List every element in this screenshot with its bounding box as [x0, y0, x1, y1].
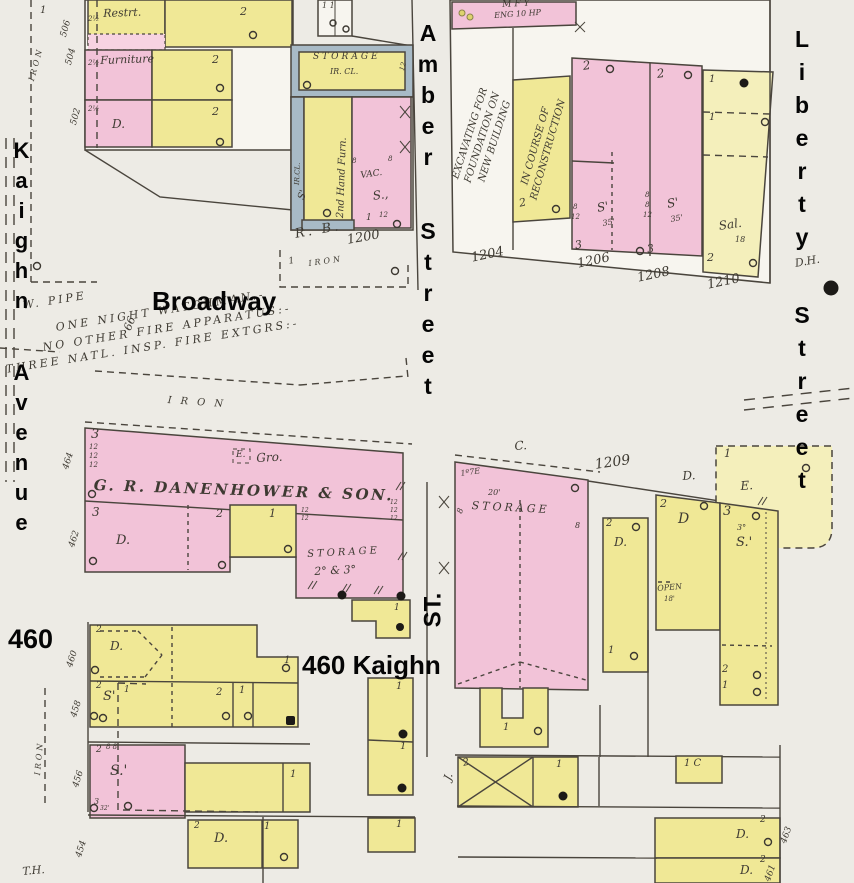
map-annotation: 8 — [388, 156, 392, 163]
map-annotation: 1º7E — [460, 467, 481, 478]
map-annotation: 1 — [724, 448, 731, 460]
map-annotation: 1 — [290, 770, 296, 781]
street-label-broadway: Broadway — [152, 286, 276, 317]
street-label-st-abbrev: ST. — [419, 593, 447, 628]
map-annotation: 12 — [301, 516, 309, 522]
map-annotation: 8 — [573, 204, 577, 211]
sanborn-map: 1IRON5065045022½2½2½Restrt.21 1Furniture… — [0, 0, 854, 883]
map-annotation: D. — [740, 864, 753, 877]
map-annotation: D — [678, 512, 689, 527]
map-annotation: 2 — [216, 508, 223, 520]
map-annotation: 1 — [264, 822, 270, 833]
map-annotation: 18 — [735, 236, 745, 244]
map-annotation: IRON — [167, 396, 232, 411]
map-annotation: 1 — [366, 214, 372, 223]
map-annotation: 12 — [379, 212, 388, 219]
map-annotation: E. — [236, 451, 245, 460]
map-annotation: 1 — [722, 681, 728, 692]
map-annotation: 2 — [582, 59, 591, 73]
map-annotation: IR. CL. — [330, 68, 358, 76]
map-annotation: 2½ — [88, 16, 99, 23]
map-annotation: E. — [740, 479, 753, 492]
map-annotation: D. — [214, 832, 228, 846]
map-annotation: OPEN — [657, 583, 682, 594]
map-annotation: 1204 — [470, 245, 505, 265]
map-annotation: 2 — [96, 682, 102, 691]
map-annotation: 1 — [269, 508, 276, 520]
map-annotation: 12 — [571, 214, 580, 221]
map-annotation: 504 — [65, 47, 79, 66]
map-annotation: 2° & 3° — [314, 564, 356, 578]
map-annotation: S' — [297, 189, 310, 202]
map-annotation: 12 — [399, 61, 408, 72]
map-annotation: G. R. DANENHOWER & SON. — [93, 478, 394, 504]
map-annotation: 2 — [462, 758, 470, 770]
map-annotation: D. — [682, 469, 696, 482]
map-annotation: S., — [372, 188, 389, 203]
map-annotation: 35' — [670, 214, 684, 224]
map-annotation: 1206 — [576, 251, 611, 271]
map-annotation: D. — [614, 536, 627, 549]
map-annotation: 12 — [390, 500, 398, 506]
map-annotation: 20' — [488, 489, 500, 497]
map-annotation: 2 — [212, 106, 219, 118]
map-annotation: S' — [596, 200, 610, 214]
map-annotation: 12 — [390, 516, 398, 522]
map-annotation: 2 — [606, 519, 612, 530]
map-annotation: 460 — [66, 650, 80, 669]
map-annotation: 1200 — [346, 228, 381, 247]
map-annotation: D. — [736, 828, 749, 841]
map-annotation: Sal. — [718, 217, 743, 233]
map-annotation: 3° — [737, 524, 746, 532]
map-annotation: 461 — [764, 864, 779, 883]
map-annotation: 12 — [89, 453, 98, 460]
map-annotation: 1 — [396, 820, 402, 831]
map-annotation: 8 8 — [106, 744, 117, 751]
lot-label-460: 460 — [8, 624, 53, 655]
map-annotation: Gro. — [256, 451, 283, 465]
map-annotation: 1 — [396, 682, 402, 693]
map-annotation: 1 1 — [322, 2, 335, 10]
map-annotation: IRON — [34, 740, 45, 775]
street-label-kaighn-avenue: Kaighn Avenue — [8, 138, 34, 540]
map-annotation: 8 — [645, 202, 649, 209]
map-annotation: 463 — [780, 826, 795, 845]
map-annotation: D. — [110, 640, 123, 653]
map-annotation: 3 — [646, 243, 655, 256]
map-annotation: 2nd Hand Furn. — [336, 137, 349, 218]
map-annotation: ENG 10 HP — [494, 9, 541, 21]
map-annotation: 1 — [400, 742, 406, 753]
map-annotation: 12 — [390, 508, 398, 514]
map-annotation: IR.CL. — [294, 163, 302, 186]
map-annotation: 12 — [89, 444, 98, 451]
map-annotation: S' — [103, 690, 115, 704]
map-annotation: 2 — [216, 688, 222, 699]
map-annotation: IRON — [308, 255, 344, 268]
map-annotation: T.H. — [22, 864, 45, 877]
map-annotation: 12 — [643, 212, 652, 219]
map-annotation: 2½ — [88, 60, 99, 67]
map-annotation: 1 — [709, 75, 715, 86]
map-annotation: 2 — [96, 626, 102, 635]
lot-label-460-kaighn: 460 Kaighn — [302, 650, 441, 681]
map-annotation: 1 — [556, 760, 562, 771]
map-annotation: 1 — [709, 113, 715, 124]
map-annotation: STORAGE — [471, 500, 549, 516]
map-annotation: Restrt. — [103, 7, 141, 20]
map-annotation: 35' — [602, 218, 616, 228]
map-annotation: 1208 — [636, 265, 671, 285]
map-annotation: 2½ — [88, 106, 99, 113]
street-label-amber-street: Amber Street — [414, 20, 441, 404]
map-annotation: 3 — [91, 428, 99, 442]
map-annotation: 8 — [456, 507, 466, 515]
map-annotation: S.' — [110, 764, 127, 779]
map-annotation: STORAGE — [307, 546, 380, 560]
map-annotation: 32' — [100, 806, 109, 812]
map-annotation: 506 — [60, 19, 74, 38]
map-annotation: 2 — [660, 498, 667, 510]
map-annotation: 1210 — [706, 272, 741, 292]
map-annotation: 458 — [70, 700, 84, 719]
map-annotation: 2 — [707, 252, 714, 264]
map-annotation: 1 — [40, 6, 46, 17]
map-annotation: 2 — [760, 856, 766, 865]
map-annotation: 8 — [645, 192, 649, 199]
map-annotation: 12 — [301, 508, 309, 514]
map-annotation: 454 — [75, 840, 89, 859]
map-annotation: 1 — [239, 686, 245, 697]
map-annotation: 18' — [664, 596, 675, 603]
map-annotation: 3 — [574, 239, 583, 252]
map-annotation: 1209 — [594, 453, 631, 473]
map-annotation: 1 C — [684, 759, 701, 770]
map-annotation: S.' — [736, 536, 752, 550]
map-annotation: 1 — [608, 646, 614, 657]
map-annotation: 3 — [92, 506, 100, 519]
map-annotation: IRON — [28, 46, 45, 82]
map-annotation: 2 — [194, 822, 200, 831]
map-annotation: 1 — [124, 686, 130, 695]
map-annotation: 1 — [288, 257, 295, 267]
map-annotation: C. — [514, 439, 527, 452]
map-annotation: 8 — [575, 522, 580, 530]
map-annotation: S' — [666, 196, 680, 210]
map-annotation: 12 — [89, 462, 98, 469]
map-annotation: 3 — [94, 798, 99, 806]
map-annotation: J. — [442, 771, 455, 782]
map-annotation: 462 — [68, 530, 82, 549]
map-annotation: 464 — [62, 452, 76, 471]
map-annotation: R. B. — [294, 220, 342, 242]
map-annotation: D. — [116, 534, 130, 548]
map-annotation: 8 — [352, 158, 356, 165]
map-annotation: 1 — [503, 723, 509, 734]
map-annotation: VAC. — [360, 169, 383, 181]
map-annotation: 2 — [722, 665, 728, 676]
map-annotation: 2 — [656, 67, 665, 81]
map-annotation: 2 — [240, 6, 247, 18]
map-annotation: Furniture — [100, 53, 154, 66]
map-annotation: 502 — [70, 107, 84, 126]
map-annotation: 1 — [284, 656, 290, 667]
map-annotation: 2 — [212, 54, 219, 66]
map-annotation: 3 — [723, 505, 731, 519]
map-annotation: 456 — [72, 770, 86, 789]
map-annotation: STORAGE — [313, 53, 381, 62]
map-annotation: 1 — [394, 604, 400, 613]
map-annotation: D. — [112, 118, 125, 131]
street-label-liberty-street: Liberty Street — [788, 26, 815, 500]
map-annotation: 2 — [96, 746, 102, 755]
map-annotation: 2 — [760, 816, 766, 825]
